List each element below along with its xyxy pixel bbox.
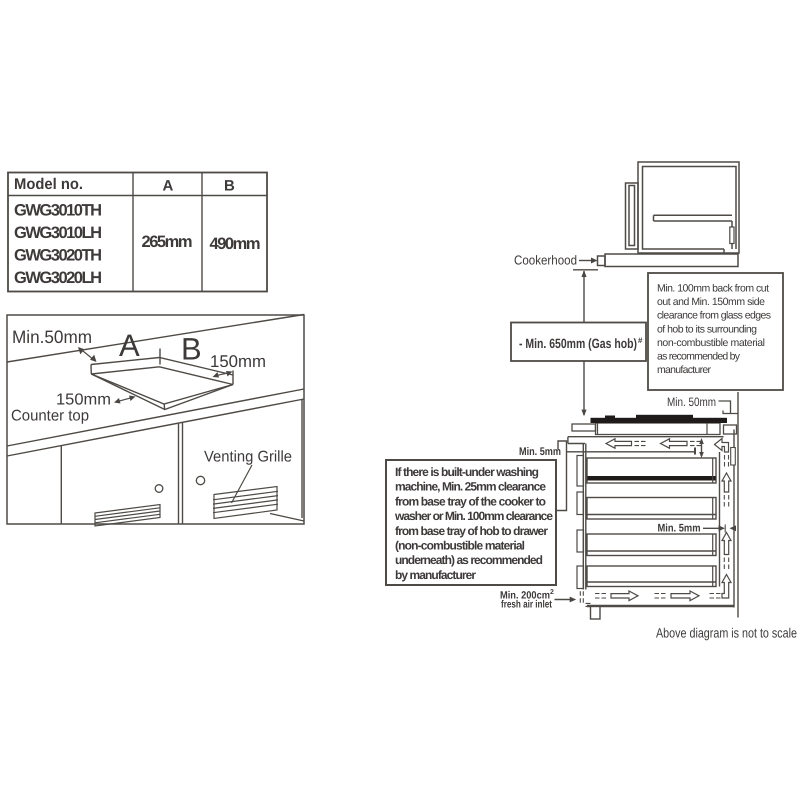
svg-text:Min.50mm: Min.50mm (12, 327, 92, 347)
svg-text:as recommended by: as recommended by (657, 351, 741, 363)
svg-text:150mm: 150mm (56, 392, 111, 409)
svg-text:from base tray of the cooker: from base tray of the cooker to (395, 494, 546, 508)
svg-text:Min. 5mm: Min. 5mm (519, 446, 561, 458)
svg-text:Above diagram is not to scale: Above diagram is not to scale (656, 626, 797, 641)
svg-text:A: A (163, 178, 174, 195)
svg-text:B: B (224, 178, 235, 195)
svg-text:GWG3020TH: GWG3020TH (14, 247, 102, 265)
svg-text:(non-combustible material: (non-combustible material (395, 539, 525, 553)
svg-text:GWG3010LH: GWG3010LH (14, 224, 102, 242)
svg-text:2: 2 (550, 589, 554, 596)
svg-text:by manufacturer: by manufacturer (395, 568, 476, 582)
svg-text:Min. 50mm: Min. 50mm (667, 395, 716, 409)
svg-text:of hob to its surrounding: of hob to its surrounding (657, 323, 757, 335)
svg-text:underneath) as recommended: underneath) as recommended (395, 553, 543, 567)
svg-text:Min. 5mm: Min. 5mm (658, 523, 701, 535)
svg-text:- Min. 650mm (Gas hob): - Min. 650mm (Gas hob) (519, 336, 637, 351)
svg-text:machine, Min. 25mm clearance: machine, Min. 25mm clearance (395, 480, 546, 494)
svg-text:Cookerhood: Cookerhood (514, 253, 577, 268)
svg-text:GWG3020LH: GWG3020LH (14, 269, 102, 287)
svg-text:Counter top: Counter top (11, 408, 89, 425)
svg-text:GWG3010TH: GWG3010TH (14, 202, 102, 220)
svg-text:from base tray of hob to drawe: from base tray of hob to drawer (395, 524, 548, 538)
svg-text:Venting Grille: Venting Grille (204, 449, 292, 466)
svg-text:Model no.: Model no. (14, 176, 83, 193)
svg-text:B: B (181, 332, 202, 367)
svg-text:150mm: 150mm (210, 352, 266, 371)
svg-text:265mm: 265mm (142, 233, 193, 251)
svg-text:manufacturer: manufacturer (657, 364, 712, 376)
svg-text:out and Min. 150mm side: out and Min. 150mm side (657, 296, 765, 308)
svg-text:#: # (638, 336, 643, 345)
svg-text:fresh air inlet: fresh air inlet (501, 598, 552, 610)
svg-text:490mm: 490mm (210, 235, 261, 253)
svg-text:non-combustible material: non-combustible material (657, 337, 765, 349)
svg-text:A: A (119, 328, 140, 363)
svg-text:Min. 100mm back from cut: Min. 100mm back from cut (657, 283, 769, 295)
svg-text:washer or Min. 100mm clearance: washer or Min. 100mm clearance (394, 509, 553, 523)
svg-text:clearance from glass edges: clearance from glass edges (657, 310, 771, 322)
svg-text:If there is built-under washin: If there is built-under washing (395, 465, 539, 479)
